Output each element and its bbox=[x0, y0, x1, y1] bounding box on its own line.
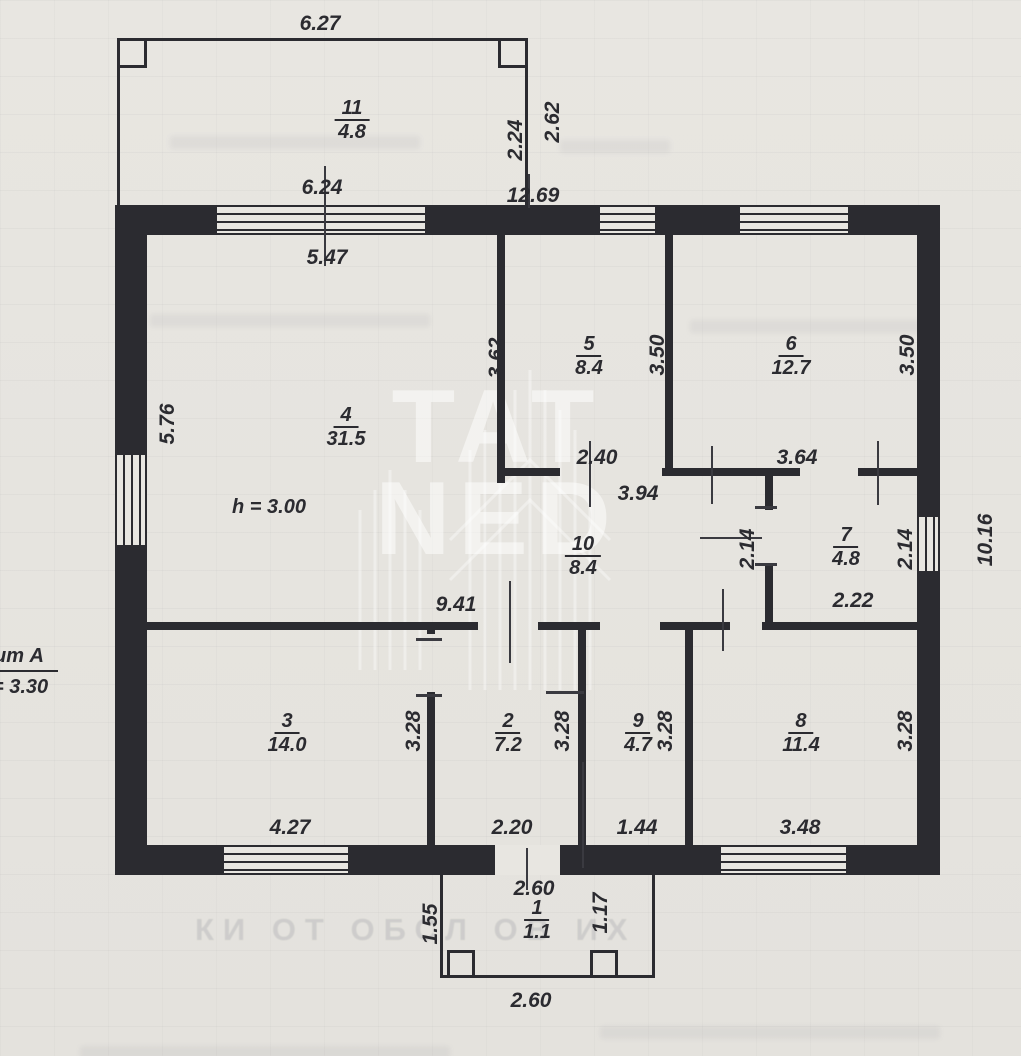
door-tick bbox=[546, 691, 584, 694]
dim-label: 3.28 bbox=[551, 711, 575, 752]
dim-label: 2.62 bbox=[541, 102, 565, 143]
window bbox=[115, 453, 147, 547]
window bbox=[598, 205, 657, 235]
dim-extension-line bbox=[722, 589, 724, 651]
dim-label: 3.50 bbox=[646, 335, 670, 376]
door-tick bbox=[416, 638, 442, 641]
dim-label: 2.60 bbox=[511, 989, 552, 1013]
door-jamb bbox=[493, 845, 495, 875]
scan-smudge bbox=[690, 320, 930, 333]
dim-label: 3.94 bbox=[618, 482, 659, 506]
room-label-11: 114.8 bbox=[335, 97, 370, 143]
wall-hall-south bbox=[660, 622, 730, 630]
dim-extension-line bbox=[711, 446, 713, 504]
dim-extension-line bbox=[582, 762, 584, 868]
dim-label: 1.17 bbox=[589, 893, 613, 934]
dim-extension-line bbox=[877, 441, 879, 505]
wall-room3-room2 bbox=[427, 630, 435, 634]
dim-label: 3.64 bbox=[777, 446, 818, 470]
dim-label: 5.76 bbox=[156, 404, 180, 445]
wall-hall-room7 bbox=[765, 475, 773, 510]
room-label-5: 58.4 bbox=[575, 333, 603, 379]
porch1-pillar-right bbox=[590, 950, 618, 978]
dim-label: 5.47 bbox=[307, 246, 348, 270]
scan-smudge bbox=[600, 1026, 940, 1039]
dim-label: 3.48 bbox=[780, 816, 821, 840]
wall-hall-room7 bbox=[765, 565, 773, 622]
door-tick bbox=[755, 506, 777, 509]
dim-label: 2.14 bbox=[736, 529, 760, 570]
dim-label: 3.28 bbox=[894, 711, 918, 752]
dim-label: 2.22 bbox=[833, 589, 874, 613]
wall-room7-room8 bbox=[762, 622, 917, 630]
door-tick bbox=[416, 694, 442, 697]
room-label-8: 811.4 bbox=[782, 710, 819, 756]
entry-door-opening bbox=[495, 845, 562, 875]
room-label-7: 74.8 bbox=[832, 524, 860, 570]
wall-room5-hall bbox=[497, 468, 560, 476]
dim-label: 10.16 bbox=[974, 514, 998, 567]
porch11-top-wall bbox=[117, 38, 528, 41]
door-jamb bbox=[560, 845, 562, 875]
porch1-pillar-left bbox=[447, 950, 475, 978]
dim-label: 2.20 bbox=[492, 816, 533, 840]
dim-label: 4.27 bbox=[270, 816, 311, 840]
ceiling-height-note: h = 3.00 bbox=[232, 496, 306, 519]
porch11-pillar-left bbox=[117, 38, 147, 68]
porch11-pillar-right bbox=[498, 38, 528, 68]
dim-label: 6.24 bbox=[302, 176, 343, 200]
window bbox=[917, 515, 940, 573]
room-label-9: 94.7 bbox=[624, 710, 652, 756]
bleed-through-text: КИ ОТ ОБСЛ ОВ ИХ bbox=[195, 912, 637, 948]
room-label-10: 108.4 bbox=[565, 533, 601, 579]
wall-hall-south bbox=[147, 622, 478, 630]
dim-label: 6.27 bbox=[300, 12, 341, 36]
scan-smudge bbox=[560, 140, 670, 153]
wall-hall-south bbox=[538, 622, 600, 630]
room-label-6: 612.7 bbox=[772, 333, 811, 379]
room-label-2: 27.2 bbox=[494, 710, 522, 756]
room-label-1: 11.1 bbox=[523, 897, 551, 943]
room-label-4: 431.5 bbox=[327, 404, 366, 450]
dim-label: 3.28 bbox=[654, 711, 678, 752]
dim-label: 1.44 bbox=[617, 816, 658, 840]
dim-label: 2.24 bbox=[504, 120, 528, 161]
room-label-3: 314.0 bbox=[268, 710, 307, 756]
dim-label: 3.50 bbox=[896, 335, 920, 376]
wall-room3-room2 bbox=[427, 692, 435, 845]
dim-extension-line bbox=[509, 581, 511, 663]
window bbox=[738, 205, 850, 235]
dim-label: 3.28 bbox=[402, 711, 426, 752]
wall-room6-room7 bbox=[858, 468, 917, 476]
dim-label: 9.41 bbox=[436, 593, 477, 617]
scan-smudge bbox=[80, 1046, 450, 1056]
scan-smudge bbox=[170, 136, 420, 149]
dim-label: 1.55 bbox=[419, 904, 443, 945]
porch1-right-wall bbox=[652, 875, 655, 978]
liter-label: ит А bbox=[0, 645, 58, 672]
dim-label: 2.60 bbox=[514, 877, 555, 901]
dim-label: 3.62 bbox=[485, 338, 509, 379]
dim-label: 2.40 bbox=[577, 446, 618, 470]
dim-label: 12.69 bbox=[507, 184, 560, 208]
floor-plan: TAT NED КИ ОТ ОБСЛ ОВ ИХ bbox=[0, 0, 1021, 1056]
wall-room9-room8 bbox=[685, 630, 693, 845]
window bbox=[215, 205, 427, 235]
dim-label: 2.14 bbox=[894, 529, 918, 570]
scan-smudge bbox=[150, 314, 430, 327]
window bbox=[222, 845, 350, 875]
liter-height-label: = 3.30 bbox=[0, 676, 48, 699]
window bbox=[719, 845, 848, 875]
